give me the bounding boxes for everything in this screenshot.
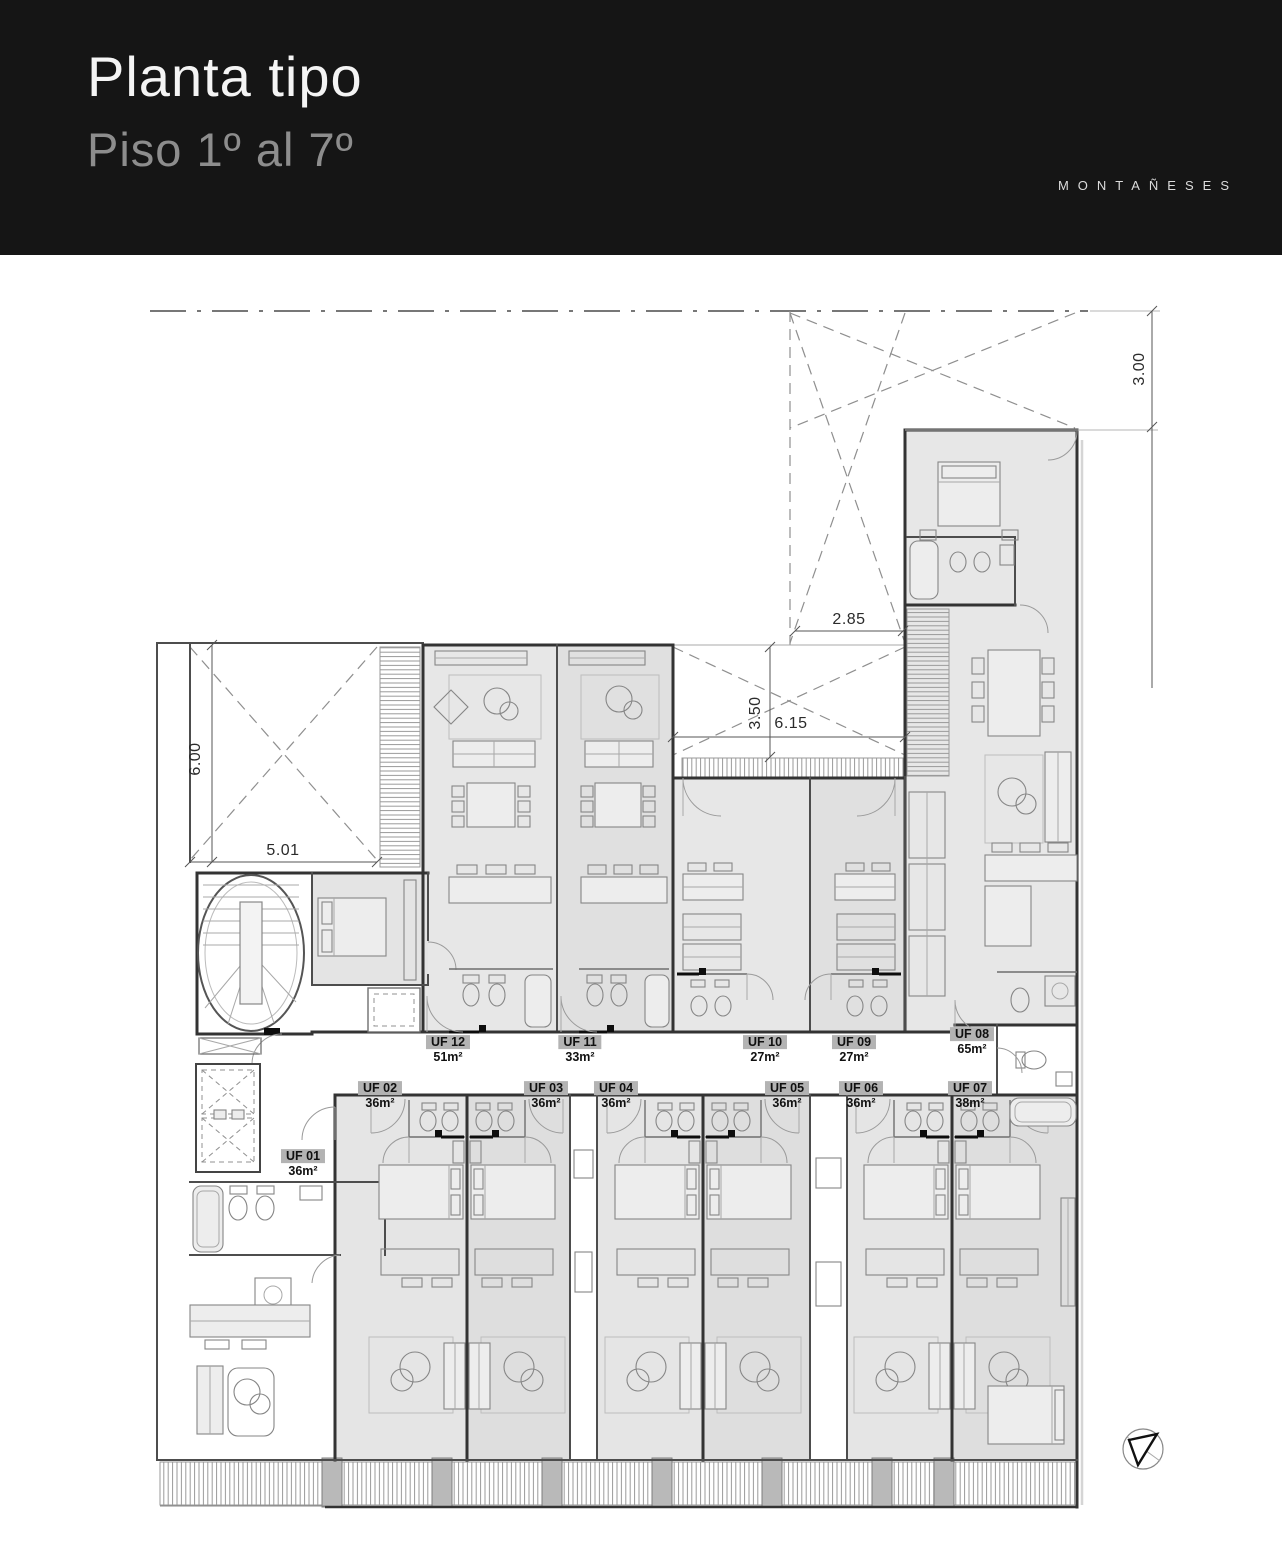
unit-label-uf10: UF 10 27m² — [743, 1035, 787, 1065]
unit-tag: UF 11 — [558, 1035, 601, 1049]
unit-label-uf11: UF 11 33m² — [558, 1035, 601, 1065]
unit-tag: UF 10 — [743, 1035, 787, 1049]
unit-tag: UF 04 — [594, 1081, 638, 1095]
unit-tag: UF 03 — [524, 1081, 568, 1095]
unit-tag: UF 05 — [765, 1081, 809, 1095]
floor-plan-page: Planta tipo Piso 1º al 7º MONTAÑESES — [0, 0, 1282, 1559]
uf07-wc — [997, 1048, 1072, 1086]
unit-tag: UF 09 — [832, 1035, 876, 1049]
dim-6-15: 6.15 — [774, 715, 807, 733]
unit-area: 38m² — [955, 1097, 984, 1111]
dim-5-01: 5.01 — [266, 842, 299, 860]
unit-area: 36m² — [846, 1097, 875, 1111]
unit-area: 33m² — [565, 1051, 594, 1065]
unit-area: 65m² — [957, 1043, 986, 1057]
unit-area: 36m² — [365, 1097, 394, 1111]
unit-area: 27m² — [839, 1051, 868, 1065]
unit-area: 36m² — [601, 1097, 630, 1111]
north-arrow-icon — [1123, 1429, 1163, 1469]
unit-tag: UF 07 — [948, 1081, 992, 1095]
unit-tag: UF 02 — [358, 1081, 402, 1095]
unit-label-uf07: UF 07 38m² — [948, 1081, 992, 1111]
dim-6-00: 6.00 — [187, 742, 205, 775]
unit-tag: UF 12 — [426, 1035, 470, 1049]
unit-area: 36m² — [772, 1097, 801, 1111]
unit-area: 36m² — [288, 1165, 317, 1179]
floor-plan-drawing — [0, 0, 1282, 1559]
room-fills — [312, 430, 1077, 1460]
unit-label-uf06: UF 06 36m² — [839, 1081, 883, 1111]
unit-tag: UF 01 — [281, 1149, 325, 1163]
unit-label-uf05: UF 05 36m² — [765, 1081, 809, 1111]
unit-tag: UF 06 — [839, 1081, 883, 1095]
unit-label-uf02: UF 02 36m² — [358, 1081, 402, 1111]
dim-3-50: 3.50 — [747, 696, 765, 729]
unit-label-uf08: UF 08 65m² — [950, 1027, 994, 1057]
dim-3-00: 3.00 — [1131, 352, 1149, 385]
unit-area: 36m² — [531, 1097, 560, 1111]
unit-area: 27m² — [750, 1051, 779, 1065]
unit-label-uf03: UF 03 36m² — [524, 1081, 568, 1111]
unit-label-uf01: UF 01 36m² — [281, 1149, 325, 1179]
unit-label-uf12: UF 12 51m² — [426, 1035, 470, 1065]
unit-tag: UF 08 — [950, 1027, 994, 1041]
unit-label-uf04: UF 04 36m² — [594, 1081, 638, 1111]
dim-2-85: 2.85 — [832, 611, 865, 629]
stair-core — [198, 875, 304, 1064]
unit-label-uf09: UF 09 27m² — [832, 1035, 876, 1065]
elevator — [196, 1038, 261, 1172]
unit-area: 51m² — [433, 1051, 462, 1065]
